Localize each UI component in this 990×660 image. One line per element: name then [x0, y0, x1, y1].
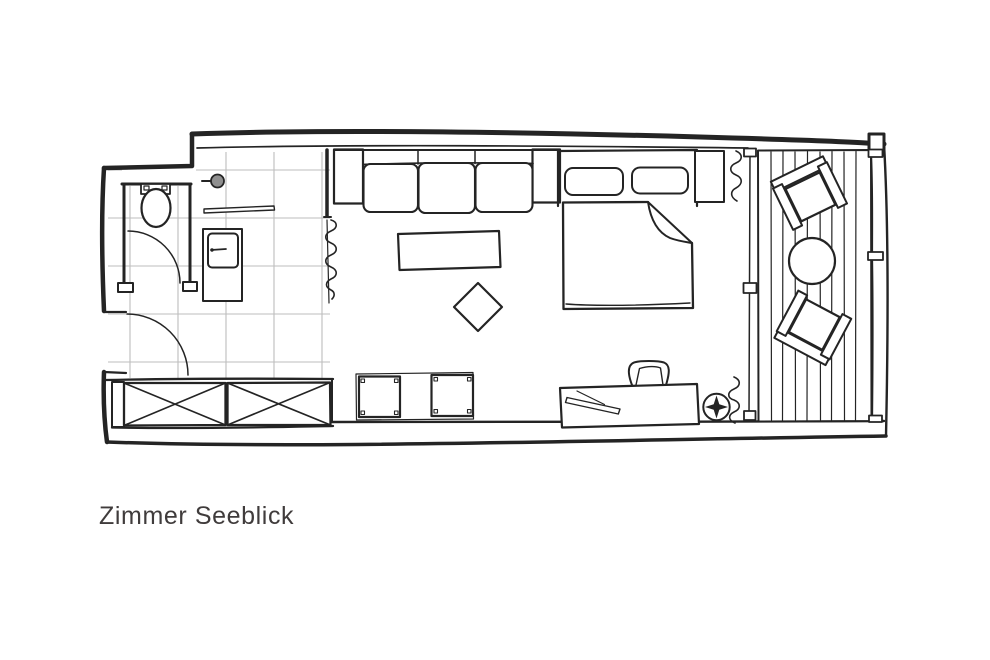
- sliding-glass-wall: [744, 149, 757, 421]
- bottom-wall-outer: [107, 436, 886, 445]
- toilet: [141, 184, 171, 227]
- pillow: [565, 168, 623, 195]
- shower-head: [202, 175, 224, 188]
- floorplan-drawing: [0, 0, 990, 660]
- left-wall-lower: [104, 372, 107, 442]
- top-wall-inner-face: [197, 146, 748, 148]
- window-curtain-top: [731, 151, 742, 201]
- vanity-cabinet: [203, 229, 242, 301]
- mattress: [563, 202, 693, 309]
- right-wall-outer: [884, 144, 888, 436]
- wc-door: [128, 231, 180, 283]
- double-bed: [558, 150, 697, 309]
- wc-wall-cap-left: [118, 283, 133, 292]
- light-symbol: [703, 394, 729, 420]
- bathroom: [118, 150, 336, 375]
- nightstand: [695, 151, 724, 202]
- balcony: [758, 150, 883, 423]
- wardrobe: [105, 379, 333, 428]
- desk-chair: [629, 361, 669, 385]
- living-area: [105, 150, 741, 429]
- top-wall: [192, 131, 884, 144]
- entry-door: [127, 314, 188, 375]
- wc-wall-cap-right: [183, 282, 197, 291]
- balcony-table: [789, 238, 835, 284]
- left-wall-lower-cap: [104, 372, 126, 373]
- ottoman: [454, 283, 502, 331]
- floor-plan-page: Zimmer Seeblick: [0, 0, 990, 660]
- plan-title: Zimmer Seeblick: [99, 502, 294, 531]
- window-curtain-bottom: [729, 377, 740, 423]
- bench: [356, 373, 474, 421]
- shower-grab-bar: [204, 206, 275, 213]
- pillow: [632, 168, 688, 194]
- desk: [560, 384, 699, 428]
- left-wall: [102, 168, 104, 311]
- sofa: [334, 150, 560, 214]
- top-left-step: [104, 134, 192, 168]
- coffee-table: [398, 231, 501, 270]
